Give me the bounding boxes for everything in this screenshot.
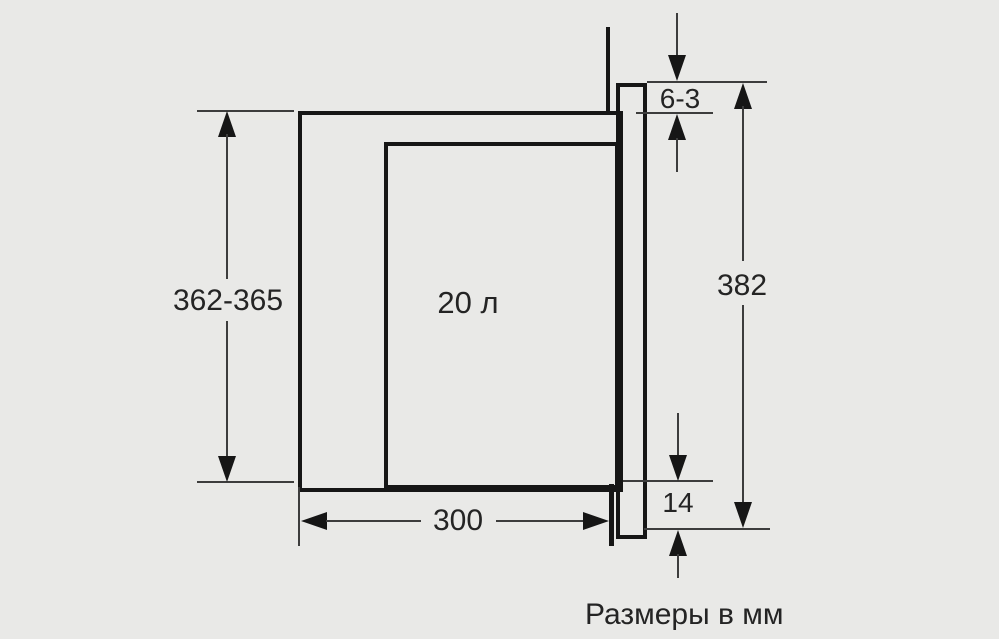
cabinet-top-edge-line [606, 27, 610, 113]
dim-362-365-line-upper [226, 134, 228, 279]
arrowhead-down-icon [218, 456, 236, 482]
dim-300-extension-right [609, 484, 614, 546]
dim-362-365-extension-top [197, 110, 294, 112]
arrowhead-down-icon [668, 55, 686, 81]
dim-14-line-upper [677, 413, 679, 457]
dim-300-line-right [496, 520, 584, 522]
dim-362-365-extension-bottom [197, 481, 294, 483]
dim-382-line-lower [742, 305, 744, 503]
dim-362-365-label: 362-365 [158, 286, 298, 316]
arrowhead-up-icon [669, 530, 687, 556]
front-panel-outline [616, 83, 647, 539]
dim-362-365-line-lower [226, 321, 228, 458]
dim-14-line-lower [677, 554, 679, 578]
dim-6-3-line-lower [676, 138, 678, 172]
arrowhead-down-icon [669, 455, 687, 481]
dim-14-extension-bottom [644, 528, 770, 530]
arrowhead-up-icon [668, 114, 686, 140]
units-caption: Размеры в мм [585, 600, 784, 630]
arrowhead-right-icon [583, 512, 609, 530]
dim-300-extension-left [298, 487, 300, 546]
cavity-volume-label: 20 л [406, 287, 530, 318]
dim-382-line-upper [742, 106, 744, 261]
dim-6-3-label: 6-3 [646, 85, 714, 113]
dim-14-extension-top [623, 480, 713, 482]
arrowhead-down-icon [734, 502, 752, 528]
dim-6-3-line-upper [676, 13, 678, 57]
arrowhead-left-icon [301, 512, 327, 530]
dim-382-label: 382 [702, 271, 782, 301]
dimension-drawing: 20 л 362-365 6-3 382 300 14 Размеры в мм [0, 0, 999, 639]
dim-300-line-left [326, 520, 421, 522]
dim-300-label: 300 [416, 506, 500, 536]
dim-14-label: 14 [650, 489, 706, 517]
